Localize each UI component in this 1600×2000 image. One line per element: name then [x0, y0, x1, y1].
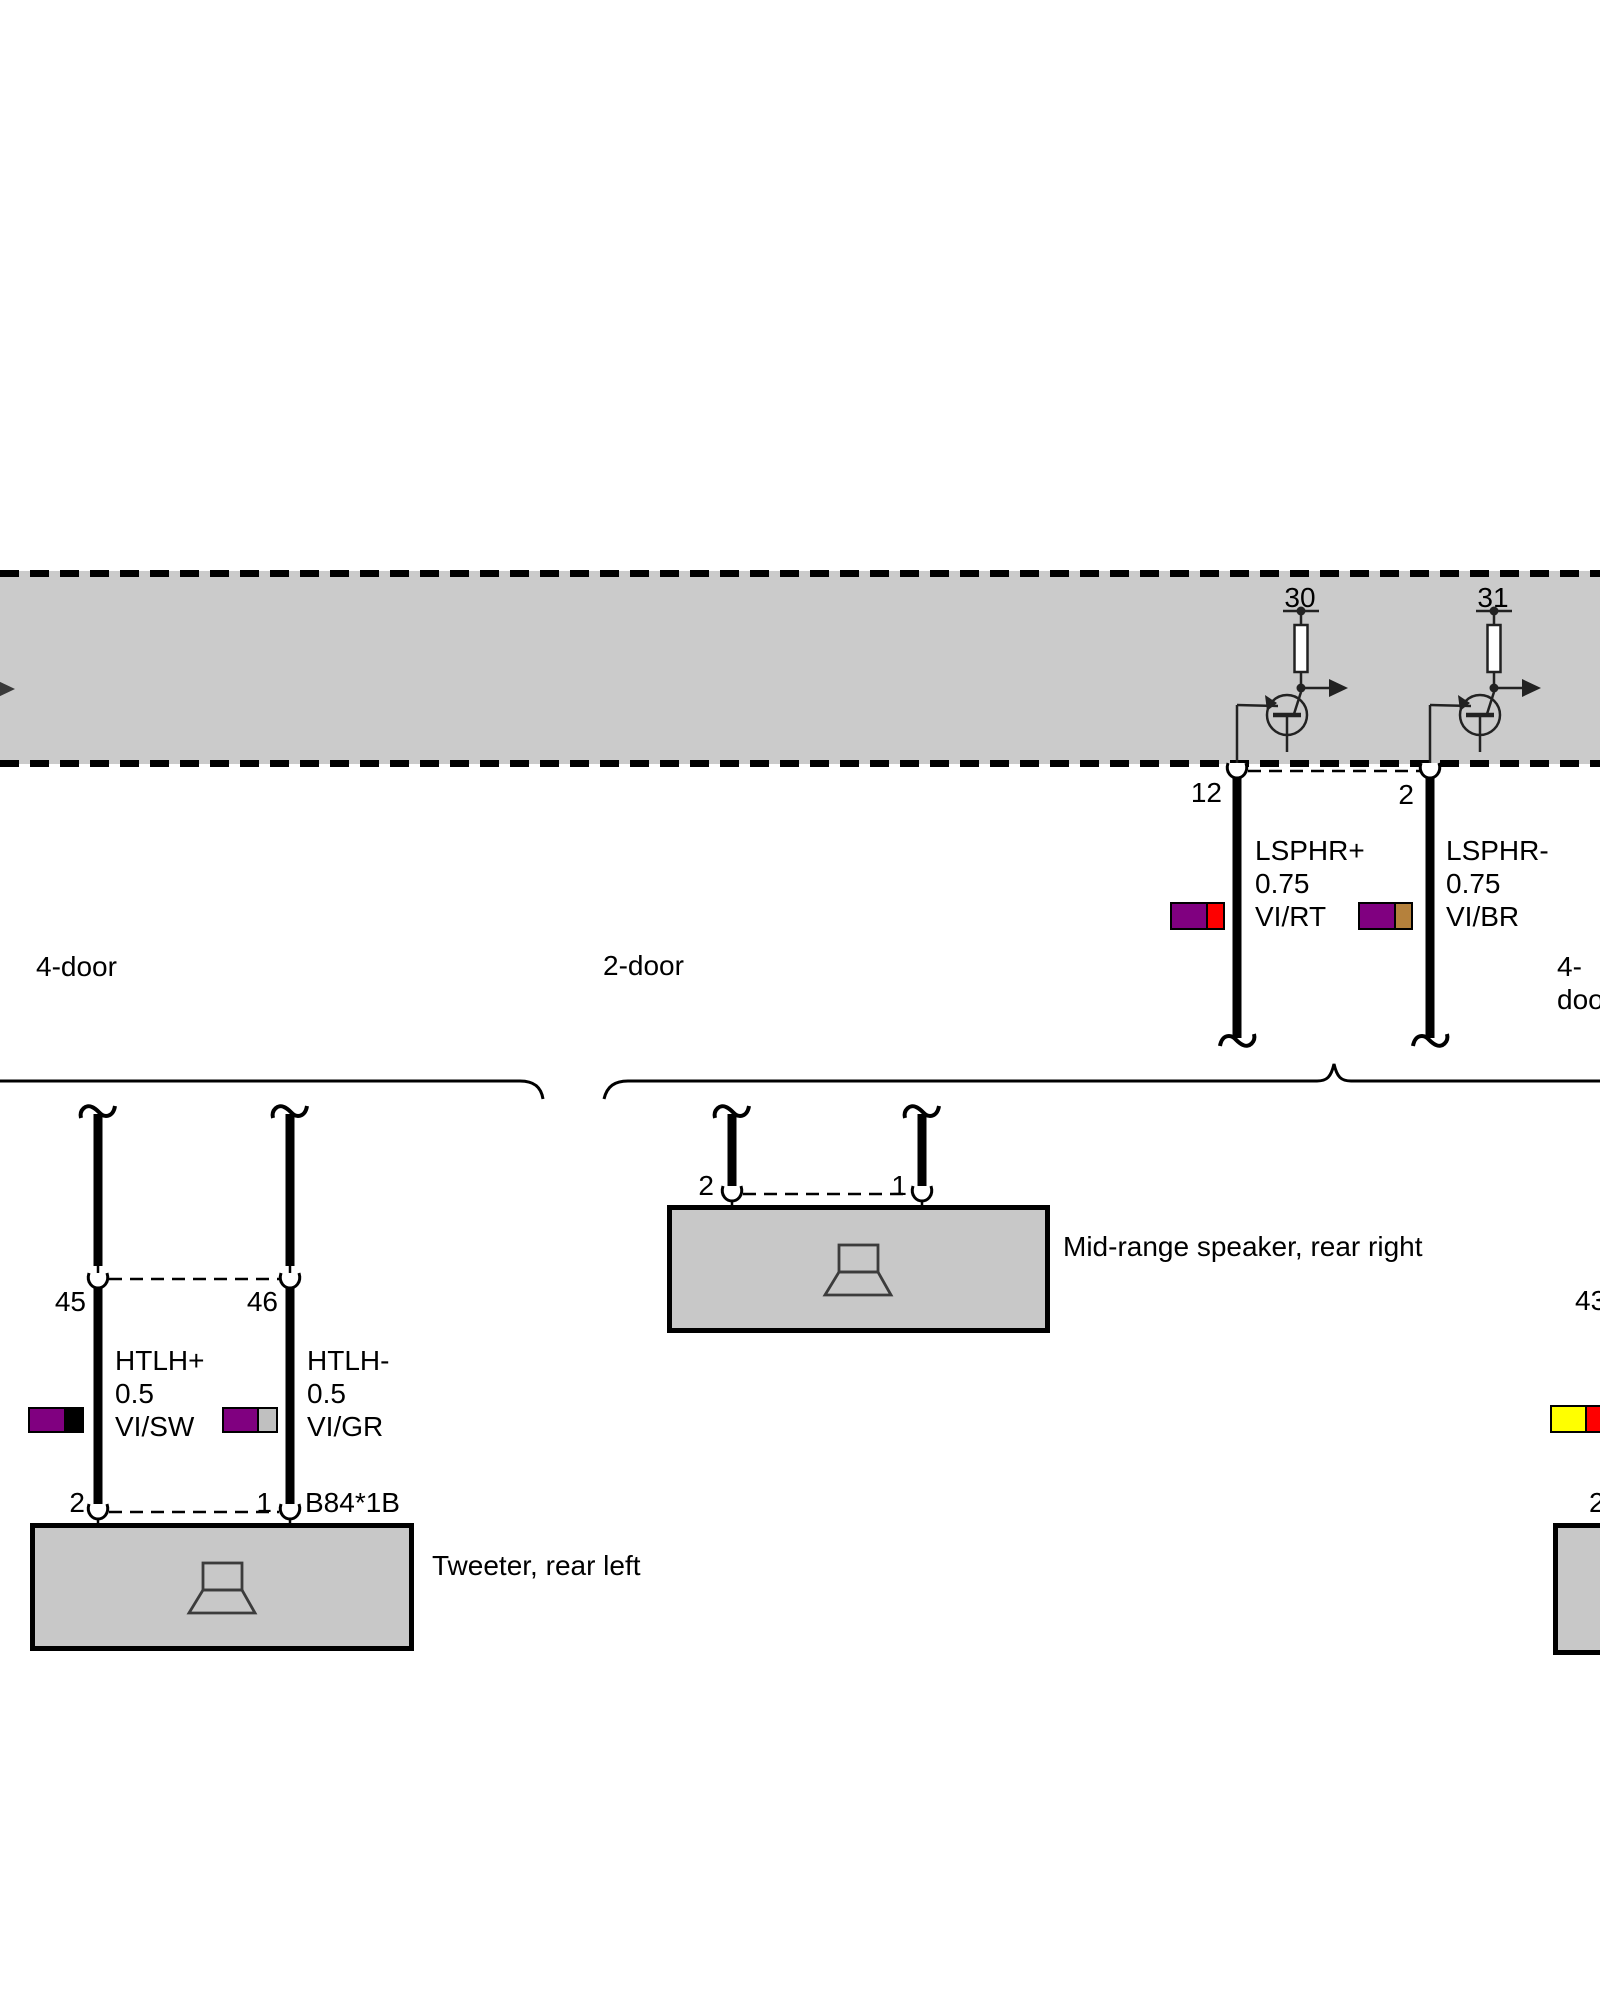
- swatch-vi-gr: [222, 1407, 278, 1433]
- swatch-segment-violet: [1360, 904, 1394, 928]
- right-pin-2-label: 2: [1589, 1486, 1600, 1519]
- variant-label-2-door: 2-door: [603, 949, 684, 982]
- tweeter-component-label: Tweeter, rear left: [432, 1549, 641, 1582]
- swatch-vi-rt: [1170, 902, 1225, 930]
- swatch-segment-violet: [1172, 904, 1206, 928]
- pin-45-label: 45: [28, 1285, 86, 1318]
- swatch-segment-violet: [224, 1409, 257, 1431]
- band-connector-pin-2-label: 2: [1356, 778, 1414, 811]
- swatch-segment-brown: [1394, 904, 1411, 928]
- band-pin-31-label: 31: [1465, 581, 1521, 614]
- swatch-segment-violet: [30, 1409, 64, 1431]
- brace-2-door: [604, 1064, 1600, 1099]
- transistor-stage-right: [1430, 607, 1541, 764]
- variant-label-4-door-left: 4-door: [36, 950, 117, 983]
- speaker-icon-midrange: [825, 1245, 891, 1295]
- wire-label-htlh-minus: HTLH- 0.5 VI/GR: [307, 1344, 389, 1443]
- pin-cup-2-tweeter: [88, 1504, 107, 1519]
- tweeter-connector-code-label: B84*1B: [305, 1486, 400, 1519]
- tweeter-pin-2-label: 2: [45, 1486, 85, 1519]
- tweeter-pin-1-label: 1: [232, 1486, 272, 1519]
- swatch-vi-sw: [28, 1407, 84, 1433]
- midrange-pin-2-label: 2: [674, 1169, 714, 1202]
- diagram-linework: [0, 0, 1600, 2000]
- band-connector-pin-12-label: 12: [1164, 776, 1222, 809]
- swatch-segment-grey: [257, 1409, 276, 1431]
- band-pin-30-label: 30: [1272, 581, 1328, 614]
- pin-cup-1-tweeter: [280, 1504, 299, 1519]
- pin-cup-2-band: [1420, 763, 1439, 778]
- brace-4-door: [0, 1081, 543, 1099]
- pin-cup-45: [88, 1273, 107, 1288]
- midrange-component-label: Mid-range speaker, rear right: [1063, 1230, 1423, 1263]
- wire-label-lsphr-plus: LSPHR+ 0.75 VI/RT: [1255, 834, 1365, 933]
- swatch-segment-red: [1206, 904, 1223, 928]
- pin-46-label: 46: [220, 1285, 278, 1318]
- variant-label-4-door-right: 4-door: [1557, 950, 1600, 1016]
- pin-cup-46: [280, 1273, 299, 1288]
- swatch-segment-red: [1585, 1407, 1600, 1431]
- pin-cup-2-midrange: [722, 1186, 741, 1201]
- swatch-ge-rt: [1550, 1405, 1600, 1433]
- pin-cup-1-midrange: [912, 1186, 931, 1201]
- swatch-vi-br: [1358, 902, 1413, 930]
- right-pin-43-label: 43: [1575, 1284, 1600, 1317]
- midrange-pin-1-label: 1: [867, 1169, 907, 1202]
- swatch-segment-black: [64, 1409, 82, 1431]
- wire-label-htlh-plus: HTLH+ 0.5 VI/SW: [115, 1344, 204, 1443]
- swatch-segment-yellow: [1552, 1407, 1585, 1431]
- band-left-arrow-icon: [0, 679, 15, 699]
- wire-label-lsphr-minus: LSPHR- 0.75 VI/BR: [1446, 834, 1549, 933]
- transistor-stage-left: [1237, 607, 1348, 764]
- speaker-icon-tweeter: [189, 1563, 255, 1613]
- pin-cup-12: [1227, 763, 1246, 778]
- wiring-diagram-page: 30 31 12 2 LSPHR+ 0.75 VI/RT LSPHR- 0.75…: [0, 0, 1600, 2000]
